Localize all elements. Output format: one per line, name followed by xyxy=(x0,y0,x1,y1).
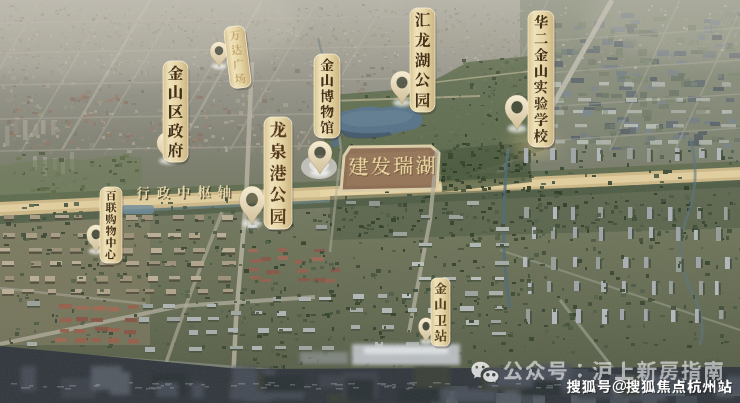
svg-text:@: @ xyxy=(612,378,627,395)
